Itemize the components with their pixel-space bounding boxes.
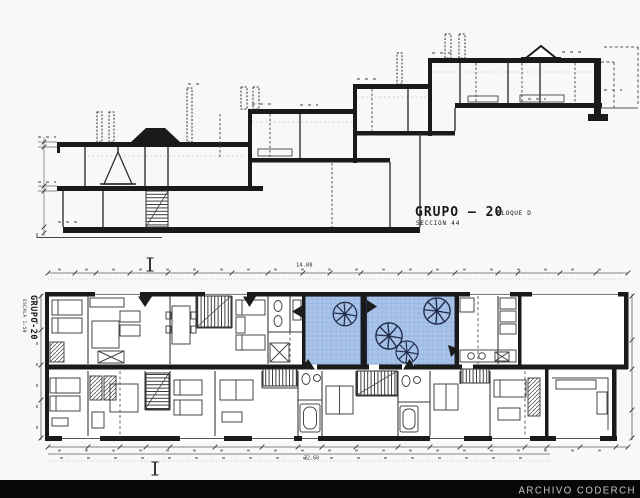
overall-dim-top: 14.88 (296, 263, 313, 269)
section-block-label: BLOQUE D (497, 210, 532, 217)
scanned-drawing-sheet: GRUPO — 20 BLOQUE D SECCION 44 (0, 0, 640, 498)
plan-side-scale: ESCALA 1:50 (21, 299, 27, 333)
section-stairs (146, 191, 168, 227)
drawing-canvas: GRUPO — 20 BLOQUE D SECCION 44 (0, 0, 640, 498)
plan-side-title: GRUPO-20 (28, 295, 38, 340)
overall-dim-bottom: 32.60 (304, 456, 319, 462)
patio-highlight-left (305, 296, 362, 365)
archive-watermark: ARCHIVO CODERCH (518, 485, 636, 496)
patio-highlight-right (367, 296, 456, 365)
footer-band: ARCHIVO CODERCH (0, 480, 640, 498)
section-subtitle: SECCION 44 (416, 220, 460, 227)
section-title: GRUPO — 20 (415, 205, 503, 220)
